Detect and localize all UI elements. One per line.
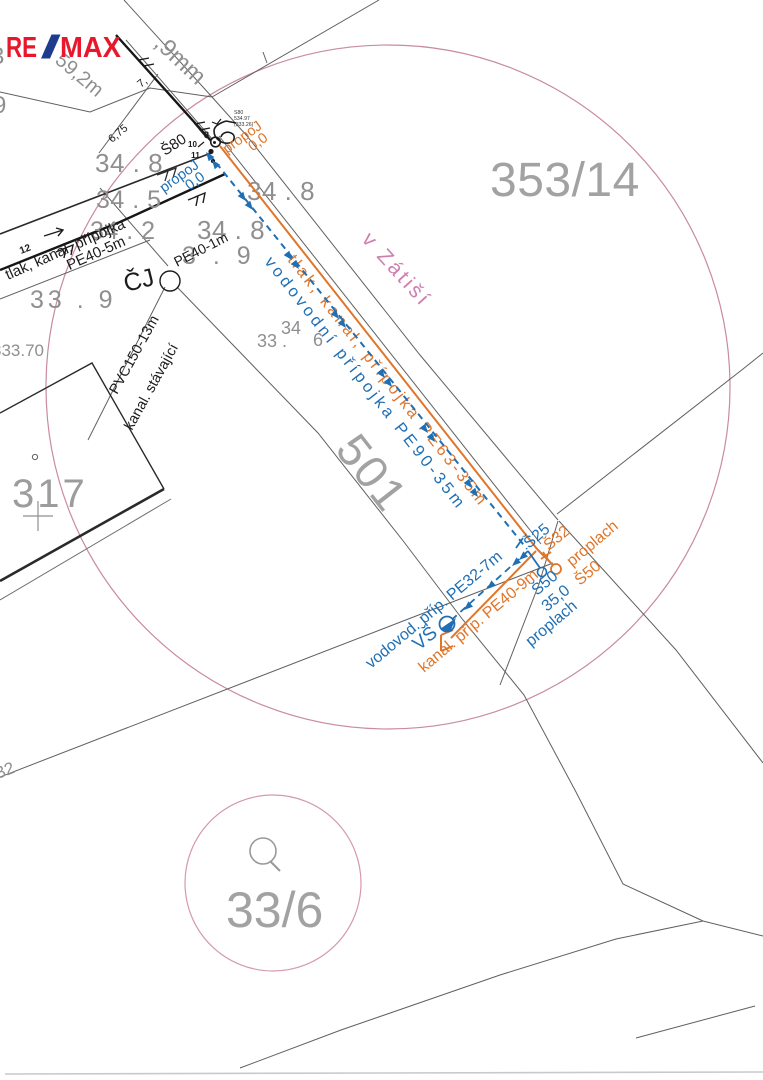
svg-text:9: 9 — [0, 92, 6, 119]
svg-text:33 . 9: 33 . 9 — [30, 286, 117, 314]
svg-text:8: 8 — [204, 130, 209, 140]
svg-text:34 . 8: 34 . 8 — [247, 176, 315, 206]
svg-text:10: 10 — [188, 140, 197, 149]
svg-text:333.70: 333.70 — [0, 341, 44, 360]
svg-text:34 . 8: 34 . 8 — [95, 148, 163, 178]
svg-text:33 .: 33 . — [257, 331, 287, 351]
svg-text:317: 317 — [12, 472, 88, 516]
svg-text:RE: RE — [6, 32, 37, 64]
svg-text:3: 3 — [0, 43, 4, 70]
svg-text:353/14: 353/14 — [490, 154, 640, 207]
svg-text:33/6: 33/6 — [226, 882, 323, 938]
svg-text:MAX: MAX — [60, 32, 122, 64]
svg-text:34 . 5: 34 . 5 — [96, 186, 162, 214]
